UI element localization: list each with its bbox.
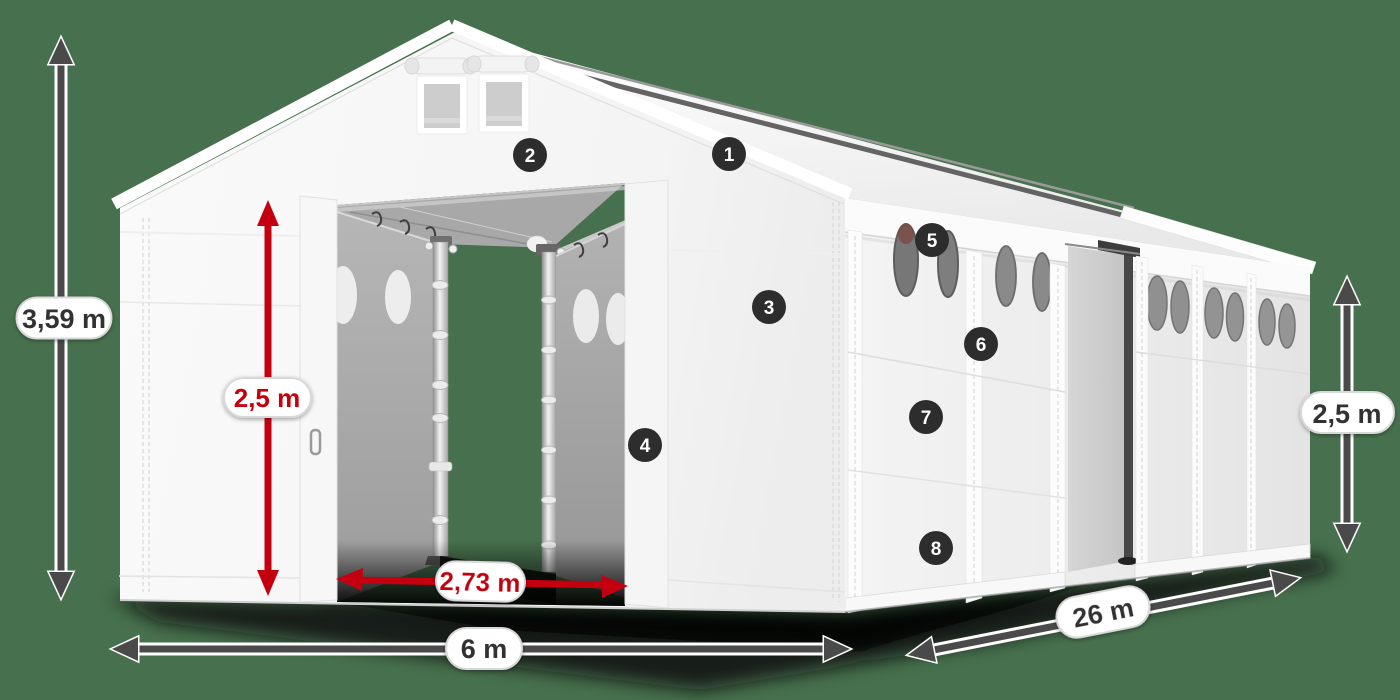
dimension-label-entrance-width: 2,73 m — [435, 561, 525, 602]
badge-4-number: 4 — [640, 436, 651, 457]
hotspot-badge-7[interactable]: 7 — [909, 400, 943, 434]
hotspot-badge-8[interactable]: 8 — [919, 531, 953, 565]
hotspot-badge-3[interactable]: 3 — [752, 290, 786, 324]
interior-vent-oval — [573, 289, 599, 343]
open-side-door — [1065, 240, 1140, 572]
dimension-label-total-height: 3,59 m — [17, 298, 112, 339]
badge-1-number: 1 — [724, 145, 735, 166]
badge-6-number: 6 — [976, 335, 987, 356]
dimension-label-front-width: 6 m — [446, 628, 522, 669]
entrance-height-value: 2,5 m — [234, 383, 301, 413]
badge-5-number: 5 — [927, 231, 938, 252]
door-jamb-right — [625, 180, 668, 608]
dimension-label-entrance-height: 2,5 m — [224, 378, 311, 417]
hotspot-badge-1[interactable]: 1 — [712, 137, 746, 171]
tent-illustration: 3,59 m 2,5 m 2,73 m 6 m 26 m 2,5 m 1 2 3… — [0, 0, 1400, 700]
interior-vent-oval — [385, 270, 411, 324]
dimension-label-side-wall-height: 2,5 m — [1301, 392, 1394, 433]
hotspot-badge-6[interactable]: 6 — [964, 327, 998, 361]
badge-2-number: 2 — [525, 146, 536, 167]
door-opening — [329, 140, 640, 620]
hotspot-badge-2[interactable]: 2 — [513, 138, 547, 172]
badge-8-number: 8 — [931, 539, 942, 560]
hotspot-badge-5[interactable]: 5 — [915, 223, 949, 257]
badge-7-number: 7 — [921, 408, 932, 429]
side-door-pole — [1124, 250, 1133, 560]
entrance-width-value: 2,73 m — [439, 566, 521, 598]
badge-3-number: 3 — [764, 298, 775, 319]
total-height-value: 3,59 m — [22, 304, 106, 334]
hotspot-badge-4[interactable]: 4 — [628, 428, 662, 462]
front-width-value: 6 m — [461, 634, 508, 664]
side-wall-height-value: 2,5 m — [1312, 399, 1381, 429]
product-diagram: 3,59 m 2,5 m 2,73 m 6 m 26 m 2,5 m 1 2 3… — [0, 0, 1400, 700]
